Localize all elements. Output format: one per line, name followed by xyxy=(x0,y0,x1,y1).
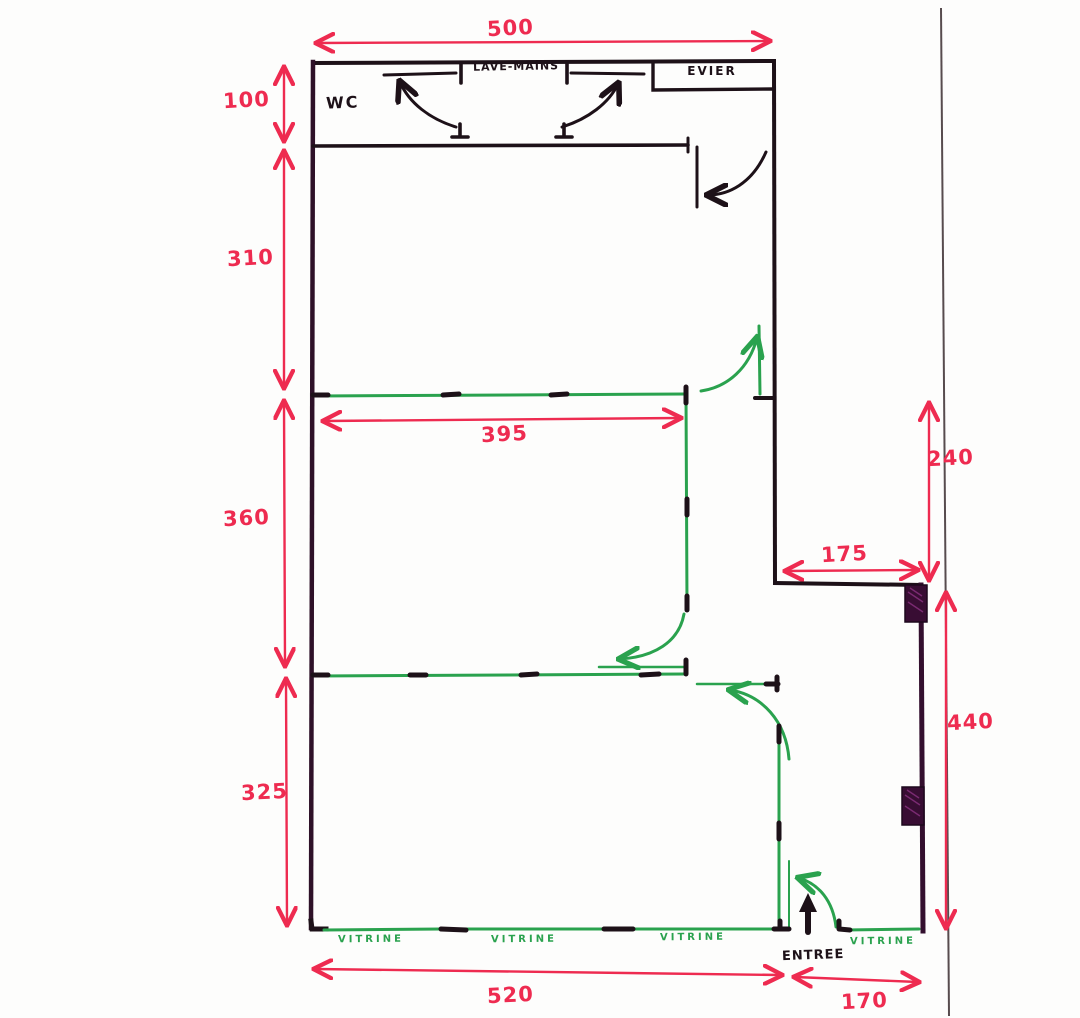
dim-line-395 xyxy=(324,418,680,421)
upper-door-swing-arc xyxy=(701,338,757,391)
recess-step-wall xyxy=(775,583,921,585)
partition-upper xyxy=(317,394,686,396)
wc-label: WC xyxy=(326,92,360,112)
dim-label-100: 100 xyxy=(222,87,270,113)
vitrine-label-4: VITRINE xyxy=(850,936,916,948)
dim-line-360 xyxy=(284,402,285,665)
vitrine-label-1: VITRINE xyxy=(338,934,404,946)
wc-area xyxy=(313,62,774,207)
joint xyxy=(521,674,537,675)
vitrine-glass-1 xyxy=(324,929,441,930)
dim-label-395: 395 xyxy=(480,421,528,447)
upper-door-leaf xyxy=(759,326,760,394)
dim-label-325: 325 xyxy=(240,779,288,805)
floor-plan-drawing xyxy=(0,0,1080,1018)
floor-plan-scan: WC LAVE-MAINS EVIER ENTREE VITRINE VITRI… xyxy=(0,0,1080,1018)
entree-label: ENTREE xyxy=(782,947,845,964)
dim-line-175 xyxy=(786,570,917,571)
joint xyxy=(641,674,659,675)
entrance-arrow-head xyxy=(799,893,817,912)
partition-middle xyxy=(317,674,686,676)
dimension-lines xyxy=(284,41,946,982)
partition-joints xyxy=(313,387,850,930)
dim-label-440: 440 xyxy=(946,709,994,735)
vitrine-mullion-1 xyxy=(441,929,466,930)
lave-mains-label: LAVE-MAINS xyxy=(473,59,559,74)
dim-label-240: 240 xyxy=(926,445,974,471)
entrance-jamb-left xyxy=(774,921,789,929)
mid-door-swing-arc xyxy=(620,614,684,659)
joint xyxy=(443,394,459,395)
bottom-left-corner xyxy=(311,921,326,929)
dim-label-175: 175 xyxy=(820,541,868,567)
dim-label-500: 500 xyxy=(486,15,534,41)
dim-label-310: 310 xyxy=(226,245,274,271)
vitrine-label-3: VITRINE xyxy=(660,932,726,944)
vitrine-label-2: VITRINE xyxy=(491,934,557,946)
right-upper-wall xyxy=(774,61,775,583)
joint xyxy=(766,677,778,690)
entrance-arrow xyxy=(799,893,817,932)
left-wall xyxy=(311,62,313,928)
outer-walls xyxy=(311,61,923,931)
evier-label: EVIER xyxy=(656,64,768,78)
right-lower-wall xyxy=(921,585,923,931)
dim-line-520 xyxy=(315,969,781,975)
basin-swing-arc-right xyxy=(562,84,618,127)
wc-bottom-wall xyxy=(313,145,688,146)
dim-label-520: 520 xyxy=(486,982,534,1008)
dim-label-360: 360 xyxy=(222,505,270,531)
joint xyxy=(551,394,567,395)
lave-mains-counter-left xyxy=(384,73,456,75)
entrance-jamb-right xyxy=(839,921,850,930)
vitrine-glass-4 xyxy=(846,929,919,930)
dim-label-170: 170 xyxy=(840,988,888,1014)
green-partitions xyxy=(317,326,919,930)
dim-line-170 xyxy=(795,977,918,982)
basin-swing-arc-left xyxy=(400,82,456,127)
wc-door-swing-arc xyxy=(708,152,766,195)
lave-mains-counter-right xyxy=(571,73,644,74)
dim-line-500 xyxy=(317,41,769,43)
pillar-upper xyxy=(905,585,927,622)
